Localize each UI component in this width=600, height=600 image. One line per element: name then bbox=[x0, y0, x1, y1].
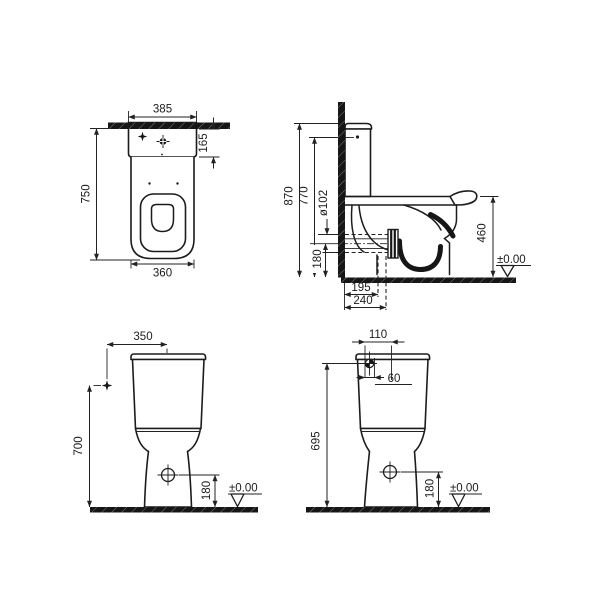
dim-side-outlet-proj: 195 bbox=[351, 282, 370, 294]
datum-symbol: ±0.00 bbox=[449, 483, 482, 507]
dim-front-tank-height: 165 bbox=[198, 133, 210, 152]
cistern-lid-outline bbox=[356, 354, 430, 360]
dim-side-outlet-diameter: ø102 bbox=[318, 190, 330, 216]
svg-text:180: 180 bbox=[425, 479, 437, 498]
wc-dimension-drawing: 385 165 750 360 bbox=[0, 0, 600, 600]
dim-rear-inlet-span: 110 bbox=[369, 329, 387, 341]
bowl-back-line bbox=[352, 205, 365, 252]
cistern-lid-outline bbox=[131, 354, 206, 360]
dim-rear-supply-offset: 350 bbox=[133, 331, 152, 343]
wall-hatch bbox=[338, 102, 345, 278]
cistern-outline bbox=[133, 360, 205, 429]
dim-rear-drain-height: 180 bbox=[201, 477, 214, 505]
floor-line bbox=[306, 507, 490, 513]
datum-symbol: ±0.00 bbox=[496, 254, 531, 277]
floor-line bbox=[90, 507, 258, 513]
svg-text:180: 180 bbox=[201, 481, 213, 500]
dim-front-height: 750 bbox=[81, 184, 93, 203]
bowl-right-profile bbox=[445, 205, 457, 275]
dim-rear-drain-height: 180 bbox=[424, 475, 437, 503]
view-front: 385 165 750 360 bbox=[81, 104, 231, 280]
cistern-outline bbox=[358, 360, 429, 429]
datum-symbol: ±0.00 bbox=[228, 483, 262, 507]
technical-drawing-sheet: 385 165 750 360 bbox=[0, 0, 600, 600]
dim-front-base-width: 360 bbox=[153, 268, 172, 280]
dim-side-outlet-center: 180 bbox=[312, 245, 325, 273]
datum-label: ±0.00 bbox=[229, 483, 258, 495]
dim-rear-supply-height: 700 bbox=[73, 436, 85, 455]
bowl-rim-thick-line bbox=[431, 215, 454, 237]
dim-side-outlet-end: 240 bbox=[353, 295, 372, 307]
pedestal-outline bbox=[361, 429, 426, 508]
dim-side-lid-height: 770 bbox=[299, 186, 311, 205]
view-side: 870 770 ø102 180 460 195 240 ±0.00 bbox=[284, 102, 532, 310]
supply-point-icon bbox=[102, 380, 113, 391]
dim-rear-height: 695 bbox=[311, 431, 323, 450]
outlet-pipe bbox=[341, 230, 398, 259]
dim-side-rim-height: 460 bbox=[477, 223, 489, 242]
dim-side-total-height: 870 bbox=[284, 186, 296, 205]
hinge-hole-icon bbox=[148, 182, 150, 184]
cistern-outline bbox=[345, 129, 371, 197]
small-dot-icon bbox=[161, 154, 163, 156]
hinge-hole-icon bbox=[176, 182, 178, 184]
cistern-lid-outline bbox=[345, 124, 372, 130]
svg-text:180: 180 bbox=[312, 249, 324, 268]
dim-front-width-top: 385 bbox=[153, 104, 172, 116]
dim-rear-inlet-offset: 60 bbox=[388, 373, 401, 385]
flush-button-icon bbox=[356, 135, 359, 138]
view-rear-supply: 350 700 180 ±0.00 bbox=[73, 331, 262, 513]
seat-nose-outline bbox=[450, 191, 477, 205]
seat-outline bbox=[141, 194, 186, 252]
trapway-outline bbox=[400, 241, 441, 270]
datum-label: ±0.00 bbox=[450, 483, 479, 495]
view-rear-inlet: 110 60 695 180 ±0.00 bbox=[306, 329, 490, 513]
datum-label: ±0.00 bbox=[497, 254, 526, 266]
wall-hatch bbox=[108, 123, 230, 130]
